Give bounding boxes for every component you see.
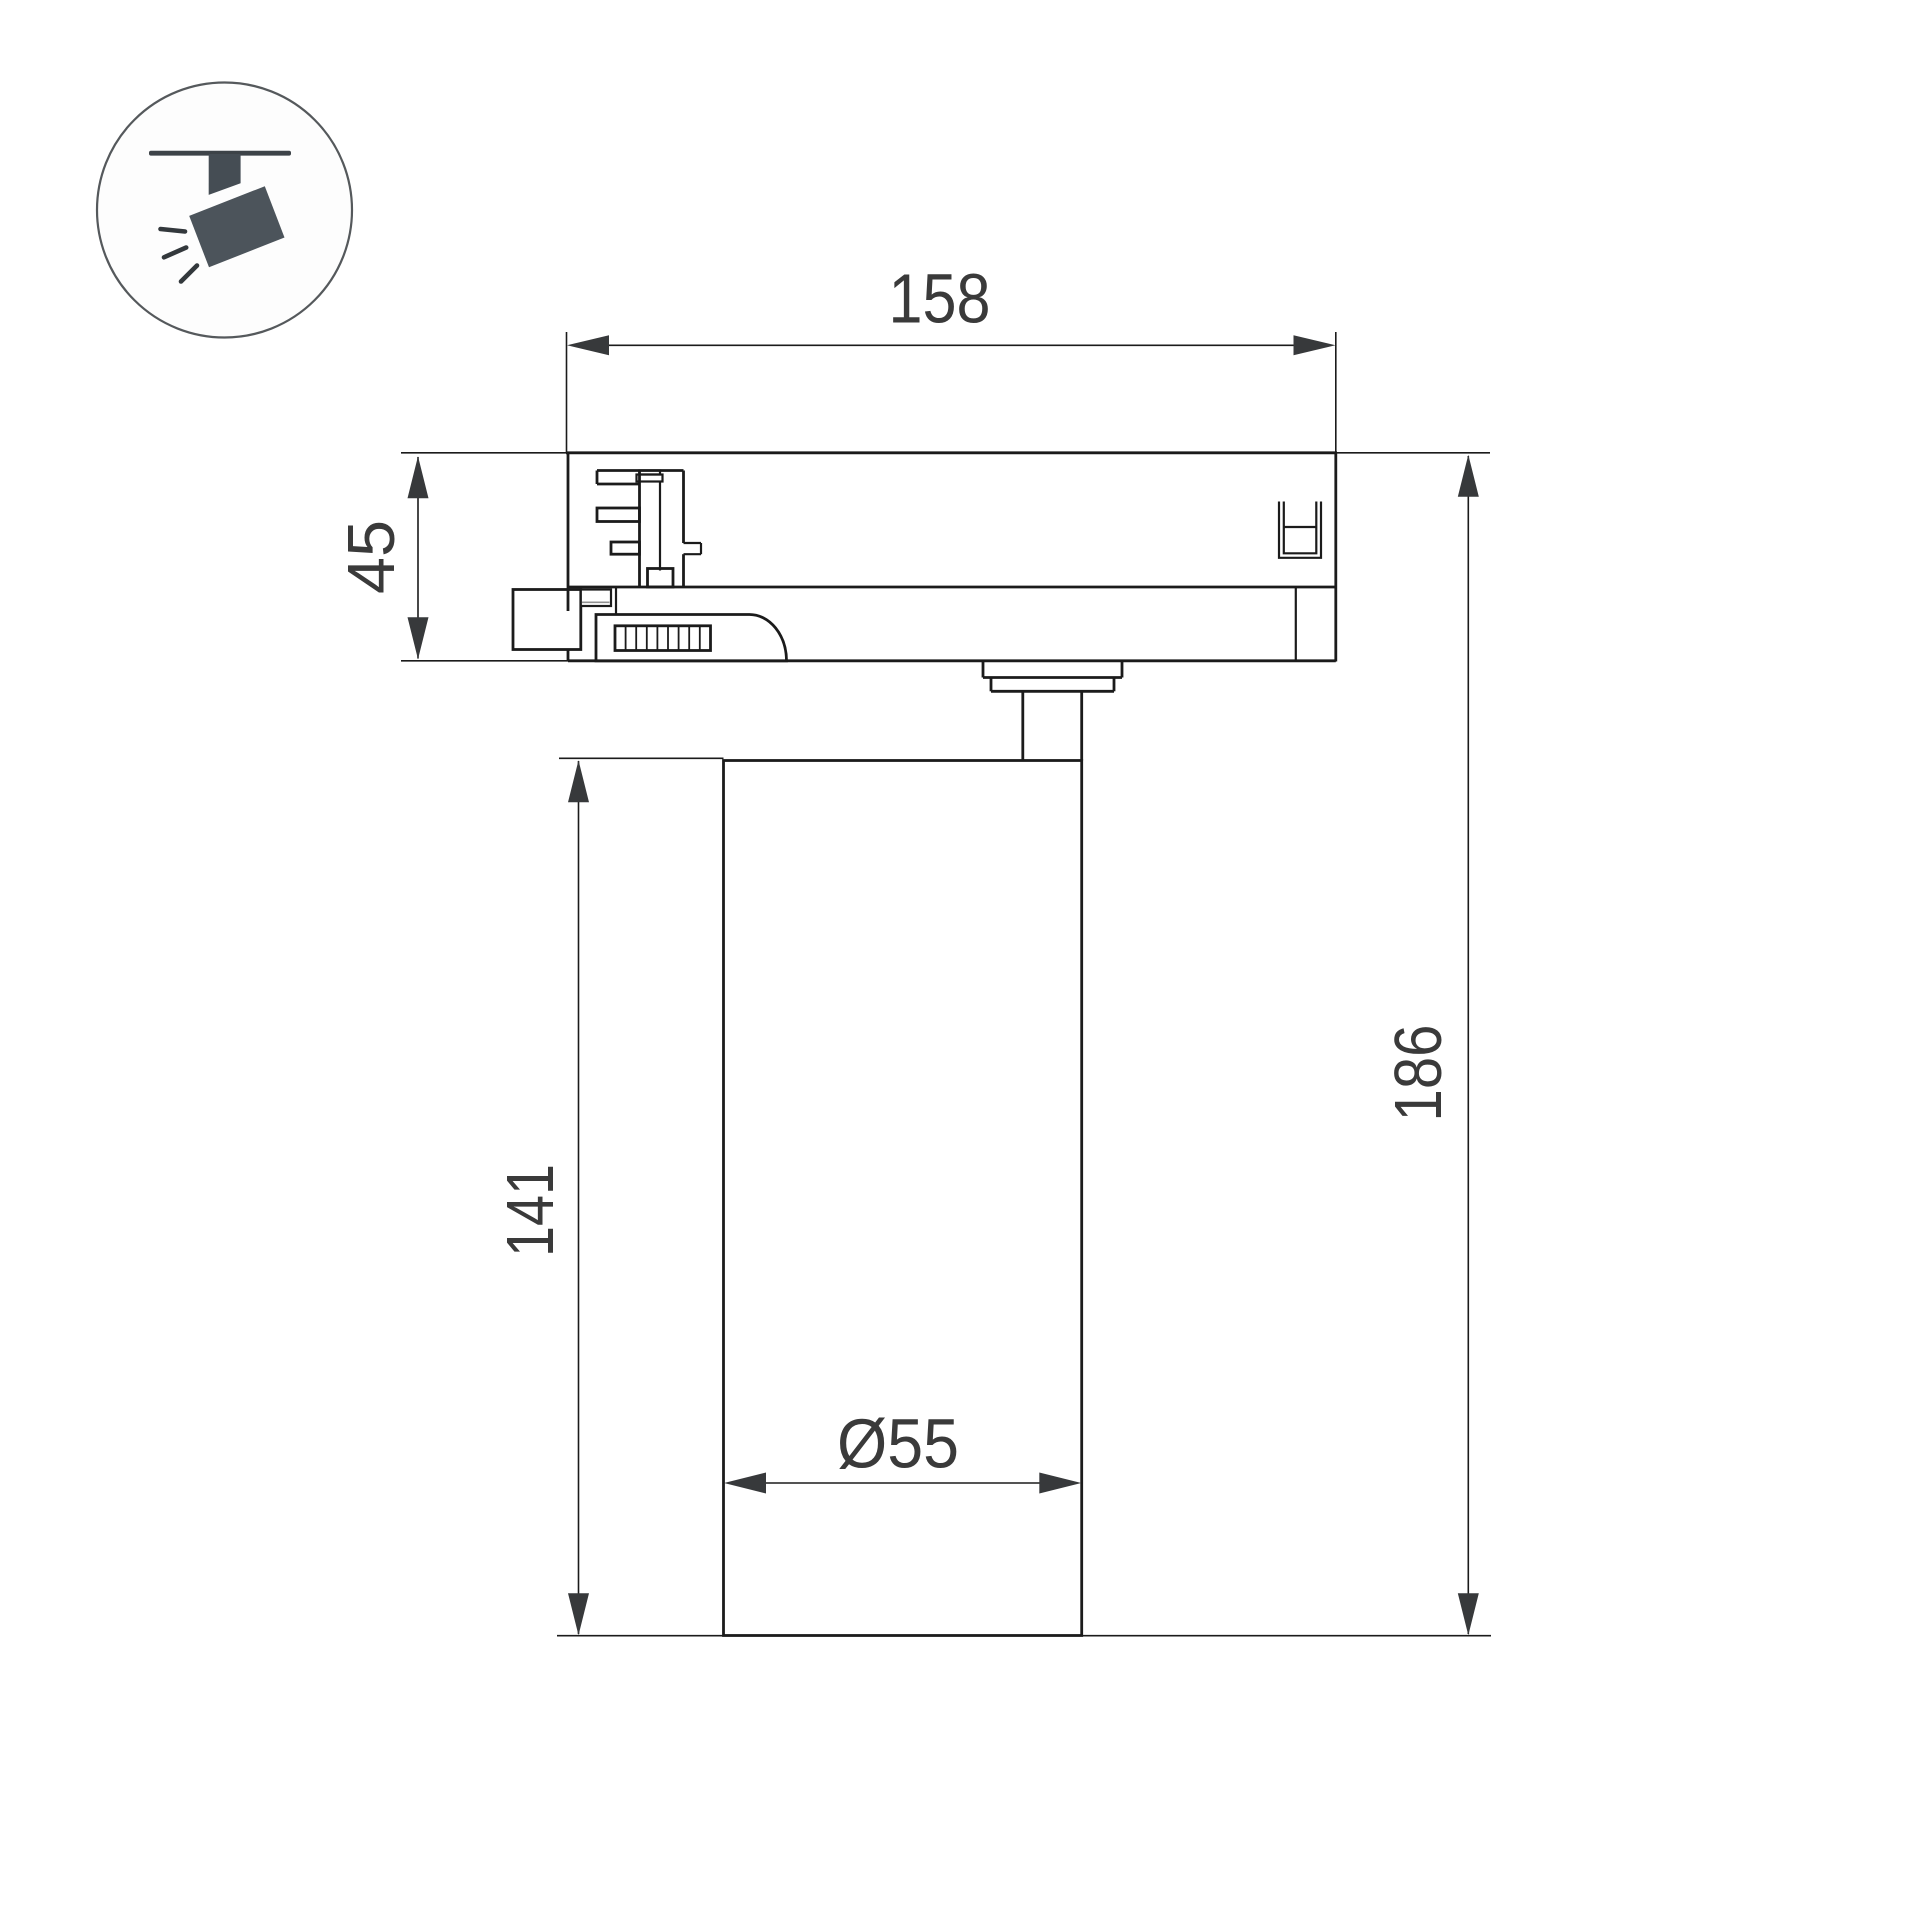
svg-text:141: 141 [493, 1164, 568, 1257]
svg-text:158: 158 [889, 260, 991, 338]
svg-text:45: 45 [334, 520, 409, 594]
svg-text:186: 186 [1382, 1025, 1456, 1122]
svg-text:Ø55: Ø55 [837, 1405, 959, 1483]
